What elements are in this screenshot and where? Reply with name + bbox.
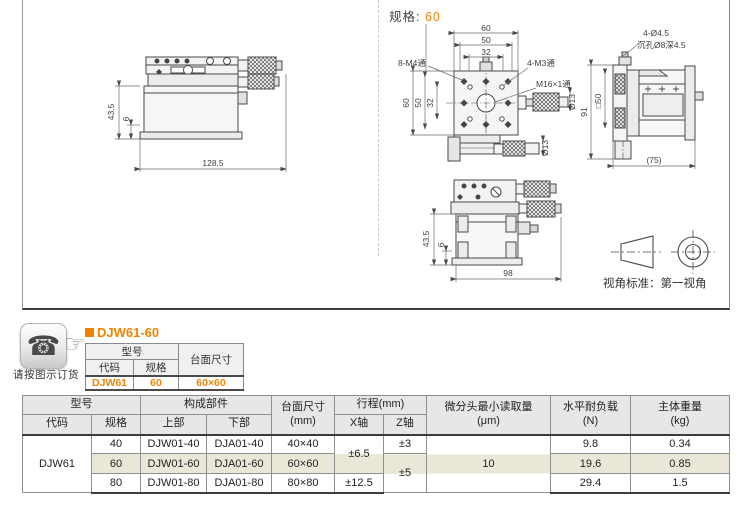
col-header-weight: 主体重量 (kg) [631, 396, 730, 435]
right-side-view-drawing: 4-Ø4.5 沉孔Ø8深4.5 91 □50 (75) [579, 26, 736, 172]
plan-dim-32-top: 32 [481, 47, 491, 57]
col-header-model: 型号 [23, 396, 141, 415]
spec-table: 型号 构成部件 台面尺寸 (mm) 行程(mm) 微分头最小读取量 (μm) 水… [22, 395, 730, 494]
mini-value-size: 60×60 [179, 376, 244, 390]
cell-upper: DJW01-60 [141, 454, 207, 474]
cell-travel-z: ±5 [384, 454, 427, 493]
col-header-load: 水平耐负载 (N) [551, 396, 631, 435]
dim-128-5: 128.5 [202, 158, 224, 168]
side-view-drawing: 43.5 6 128.5 [101, 48, 301, 183]
dim-6: 6 [121, 116, 131, 121]
cell-resolution: 10 [427, 435, 551, 493]
cell-travel-x: ±6.5 [335, 435, 384, 474]
mini-value-spec: 60 [134, 376, 179, 390]
cell-upper: DJW01-80 [141, 474, 207, 493]
cell-load: 29.4 [551, 474, 631, 493]
cell-lower: DJA01-60 [207, 454, 272, 474]
spec-value: 60 [425, 10, 441, 24]
cell-travel-z: ±3 [384, 435, 427, 454]
cell-upper: DJW01-40 [141, 435, 207, 454]
spec-label: 规格: [389, 10, 420, 24]
label-8-m4: 8-M4通 [398, 58, 426, 68]
mini-header-size: 台面尺寸 [179, 344, 244, 377]
front-view-body [451, 180, 561, 265]
spec-note: 规格: 60 [389, 6, 441, 25]
cell-code: DJW61 [23, 435, 92, 493]
product-mini-table: 型号 台面尺寸 代码 规格 DJW61 60 60×60 [85, 343, 244, 391]
label-4-m3: 4-M3通 [527, 58, 555, 68]
order-note: 请按图示订货 [13, 367, 79, 382]
pointing-hand-icon: ☞ [64, 330, 86, 359]
front-view-drawing: 43.5 6 98 [396, 172, 591, 290]
table-row-40: DJW61 40 DJW01-40 DJA01-40 40×40 ±6.5 ±3… [23, 435, 730, 454]
cell-travel-x: ±12.5 [335, 474, 384, 493]
cell-size: 80×80 [272, 474, 335, 493]
cell-load: 9.8 [551, 435, 631, 454]
cell-lower: DJA01-80 [207, 474, 272, 493]
label-counterbore: 沉孔Ø8深4.5 [637, 40, 686, 50]
front-dim-43-5: 43.5 [421, 230, 431, 247]
label-dia13-side: Ø13 [567, 94, 577, 110]
plan-dim-60-left: 60 [401, 98, 411, 108]
dim-91: 91 [579, 107, 589, 117]
col-header-travel: 行程(mm) [335, 396, 427, 415]
label-dia13-bottom: Ø13 [540, 140, 550, 156]
phone-icon: ☎ [27, 333, 61, 360]
plan-dim-50-top: 50 [481, 35, 491, 45]
mini-header-code: 代码 [86, 360, 134, 377]
plan-dim-50-left: 50 [413, 98, 423, 108]
col-header-lower: 下部 [207, 415, 272, 435]
right-view-body [613, 52, 703, 159]
dim-43-5: 43.5 [106, 103, 116, 120]
table-row-80: 80 DJW01-80 DJA01-80 80×80 ±12.5 29.4 1.… [23, 474, 730, 493]
mini-header-model: 型号 [86, 344, 179, 360]
plan-dim-32-left: 32 [425, 98, 435, 108]
col-header-upper: 上部 [141, 415, 207, 435]
cell-spec: 60 [92, 454, 141, 474]
cell-size: 60×60 [272, 454, 335, 474]
col-header-spec: 规格 [92, 415, 141, 435]
cell-load: 19.6 [551, 454, 631, 474]
product-title-row: DJW61-60 [85, 325, 159, 340]
col-header-code: 代码 [23, 415, 92, 435]
dim-75: (75) [646, 155, 661, 165]
cell-weight: 0.85 [631, 454, 730, 474]
dim-square-50: □50 [593, 93, 603, 108]
mini-value-code: DJW61 [86, 376, 134, 390]
projection-glyphs [611, 230, 715, 274]
col-header-size: 台面尺寸 (mm) [272, 396, 335, 435]
mini-header-spec: 规格 [134, 360, 179, 377]
plan-view-drawing: 60 50 32 60 50 32 8-M4通 4-M3通 M16×1通 Ø13… [396, 24, 591, 174]
order-icon-box: ☎ [20, 323, 67, 369]
cell-weight: 1.5 [631, 474, 730, 493]
cell-size: 40×40 [272, 435, 335, 454]
technical-drawing-panel: 规格: 60 [22, 0, 730, 310]
cell-spec: 80 [92, 474, 141, 493]
front-dim-6: 6 [436, 242, 446, 247]
col-header-x-axis: X轴 [335, 415, 384, 435]
title-bullet [85, 328, 94, 337]
projection-note: 视角标准：第一视角 [603, 276, 707, 290]
panel-divider [378, 0, 379, 256]
col-header-components: 构成部件 [141, 396, 272, 415]
label-m16: M16×1通 [536, 79, 571, 89]
cell-lower: DJA01-40 [207, 435, 272, 454]
side-view-body [140, 57, 282, 139]
col-header-z-axis: Z轴 [384, 415, 427, 435]
label-4-dia45: 4-Ø4.5 [643, 28, 669, 38]
cell-weight: 0.34 [631, 435, 730, 454]
product-title: DJW61-60 [97, 325, 159, 340]
plan-dim-60-top: 60 [481, 24, 491, 33]
first-angle-projection-symbol: 视角标准：第一视角 [599, 228, 739, 292]
col-header-resolution: 微分头最小读取量 (μm) [427, 396, 551, 435]
cell-spec: 40 [92, 435, 141, 454]
front-dim-98: 98 [503, 268, 513, 278]
